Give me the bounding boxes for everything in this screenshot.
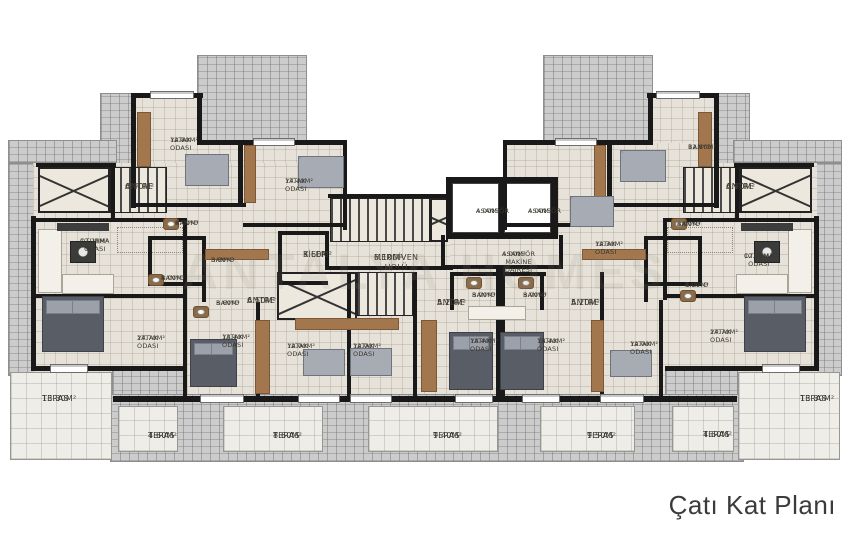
window [200, 394, 244, 403]
window [522, 394, 560, 403]
terrace-area [672, 406, 734, 452]
toilet-icon [193, 306, 209, 318]
room-area: 27.70m² [710, 328, 738, 336]
wall [278, 231, 328, 235]
wardrobe-strip [137, 112, 151, 167]
window [455, 394, 493, 403]
wall [243, 223, 347, 227]
floor-plan-canvas: YATAK ODASI 12.80m² YATAK ODASI 17.40m² … [0, 0, 850, 550]
room-area: 4.20m² [685, 281, 709, 289]
wall [36, 163, 116, 167]
sofa [788, 229, 812, 293]
wall [604, 203, 719, 207]
wall [659, 300, 663, 398]
room-area: 8.60m² [273, 431, 302, 441]
terrace-area [540, 406, 635, 452]
wardrobe-strip [295, 318, 399, 330]
window [600, 394, 644, 403]
double-bed [744, 296, 806, 352]
room-area: 13.40m² [222, 333, 250, 341]
room-area: 4.60m² [703, 430, 732, 440]
roof-area [543, 55, 653, 143]
wall [698, 236, 702, 284]
room-area: 12.20m² [80, 237, 108, 245]
staircase-landing-icon [38, 167, 110, 213]
room-area: 17.40m² [285, 177, 313, 185]
room-area: 27.70m² [137, 334, 165, 342]
room-area: 4.00m² [677, 220, 701, 228]
room-area: 13.40m² [470, 337, 498, 345]
watermark: ANTALYA HOMES [182, 243, 668, 301]
window [50, 364, 88, 373]
room-area: 12.20m² [744, 252, 772, 260]
room-area: 12.80m² [170, 136, 198, 144]
wall [814, 216, 819, 371]
wardrobe-strip [698, 112, 712, 167]
roof-area [8, 140, 117, 163]
terrace-area [10, 372, 112, 460]
sofa [62, 274, 114, 294]
room-area: 4.00m² [476, 207, 500, 215]
single-bed [570, 196, 614, 227]
room-area: 12.80m² [688, 143, 716, 151]
room-area: 4.00m² [528, 207, 552, 215]
room-area: 6.90m² [726, 182, 755, 192]
room-area: 13.30m² [800, 394, 834, 404]
wall [648, 93, 653, 145]
wall [734, 163, 814, 167]
window [298, 394, 340, 403]
roof-area [733, 140, 842, 163]
room-area: 9.50m² [587, 431, 616, 441]
terrace-area [223, 406, 323, 452]
window [150, 91, 194, 99]
window [253, 138, 295, 146]
toilet-icon [680, 290, 696, 302]
wall [328, 194, 450, 198]
wardrobe-strip [591, 320, 604, 392]
room-area: 9.40m² [433, 431, 462, 441]
single-bed [620, 150, 666, 182]
wardrobe-strip [244, 145, 256, 203]
wall [238, 145, 243, 207]
wall [183, 300, 187, 398]
terrace-area [738, 372, 840, 460]
room-area: 4.00m² [175, 219, 199, 227]
room-area: 12.00m² [287, 342, 315, 350]
wardrobe-strip [421, 320, 437, 392]
room-area: 6.90m² [125, 182, 154, 192]
window [350, 394, 392, 403]
plan-title: Çatı Kat Planı [669, 490, 836, 521]
wall [131, 203, 246, 207]
tv-unit [741, 223, 793, 231]
sofa [736, 274, 788, 294]
room-area: 4.60m² [148, 431, 177, 441]
wardrobe-strip [594, 145, 606, 203]
wall [503, 140, 507, 230]
window [656, 91, 700, 99]
wall [111, 163, 115, 221]
room-area: 12.00m² [353, 342, 381, 350]
window [762, 364, 800, 373]
window [555, 138, 597, 146]
sofa [468, 306, 526, 320]
wall [644, 236, 702, 240]
wardrobe-strip [255, 320, 270, 394]
sofa [38, 229, 62, 293]
single-bed [185, 154, 229, 186]
room-area: 12.00m² [630, 340, 658, 348]
terrace-area [118, 406, 178, 452]
double-bed [42, 296, 104, 352]
room-area: 13.40m² [537, 337, 565, 345]
wall [735, 163, 739, 221]
room-area: 13.30m² [42, 394, 76, 404]
tv-unit [57, 223, 109, 231]
roof-area [197, 55, 307, 143]
terrace-area [368, 406, 498, 452]
single-bed [303, 349, 345, 376]
wall [148, 236, 206, 240]
